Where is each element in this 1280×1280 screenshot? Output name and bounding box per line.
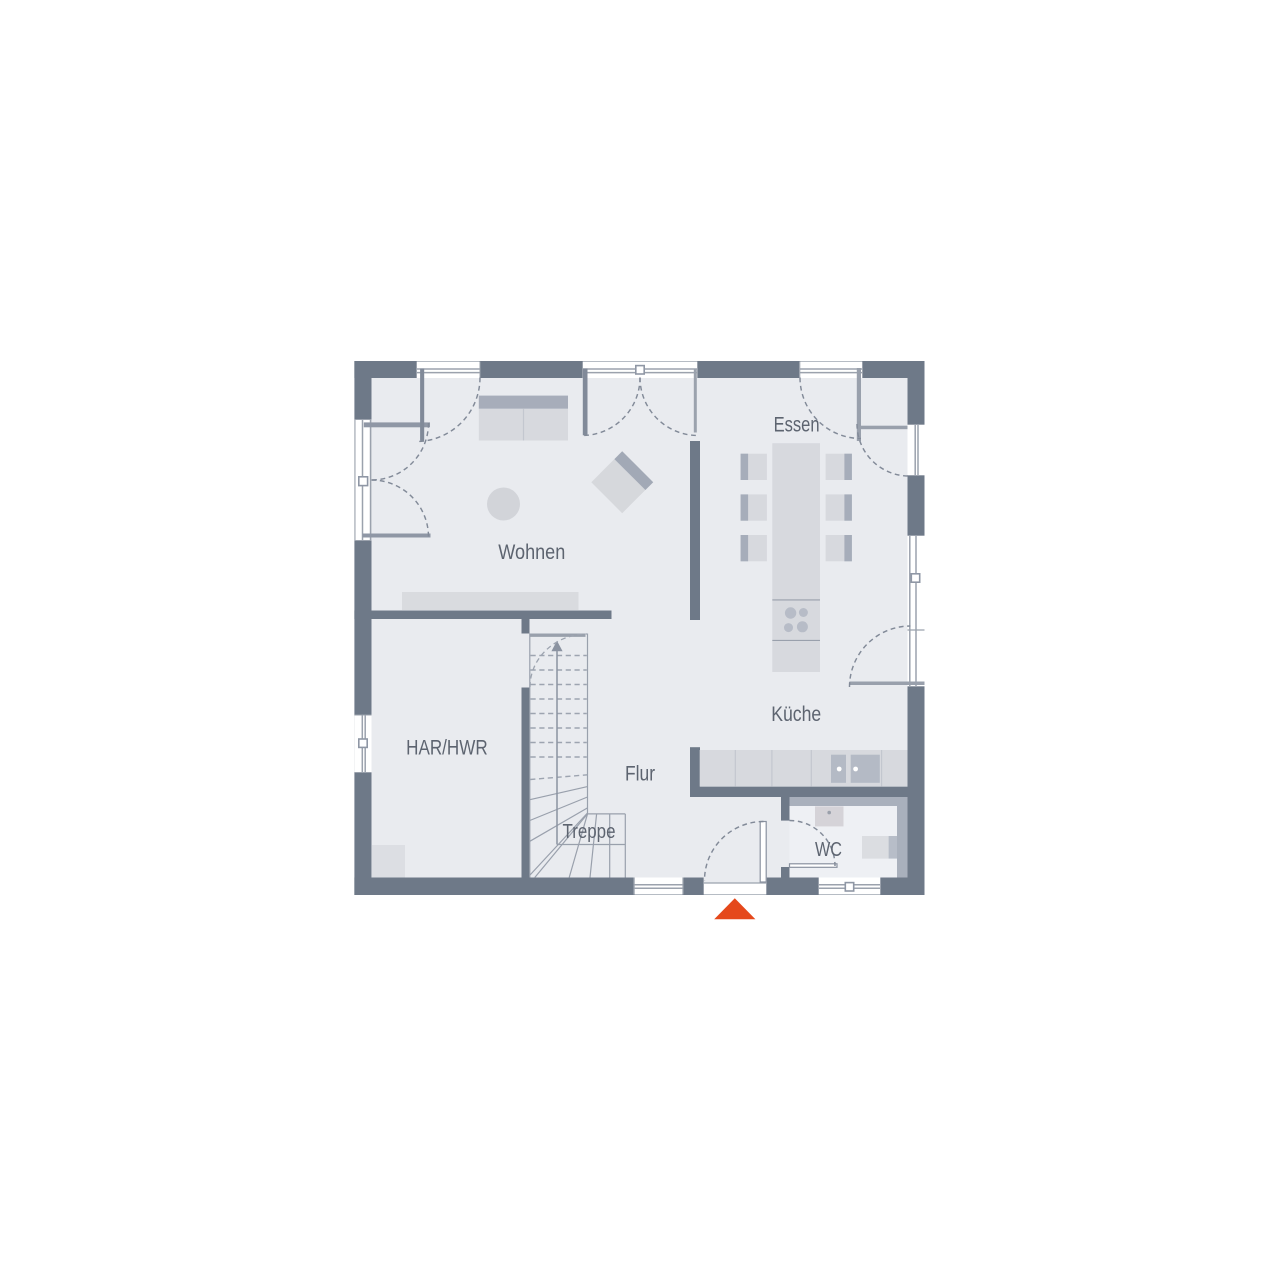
svg-text:WC: WC bbox=[815, 839, 842, 861]
svg-text:Flur: Flur bbox=[625, 762, 655, 786]
svg-text:Essen: Essen bbox=[774, 413, 820, 437]
svg-text:Wohnen: Wohnen bbox=[498, 540, 565, 564]
svg-text:HAR/HWR: HAR/HWR bbox=[406, 736, 488, 760]
svg-text:Küche: Küche bbox=[771, 702, 821, 726]
svg-text:Treppe: Treppe bbox=[563, 821, 616, 843]
